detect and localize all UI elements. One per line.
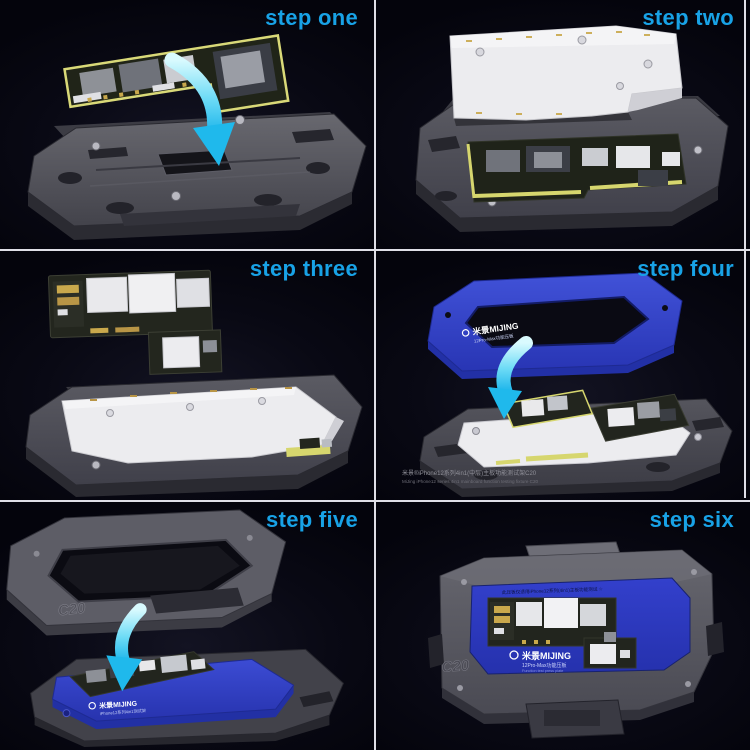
watermark-line-en: MiJing iPhone12 series 4in1 mainboard fu… <box>402 479 539 484</box>
watermark-line-cn: 米景®iPhone12系列4in1(中层)主板功能测试架C20 <box>402 469 537 477</box>
panel-step-six: step six <box>376 502 750 750</box>
panel-step-three: step three <box>0 251 374 500</box>
panel-step-five: step five C20 <box>0 502 374 750</box>
right-clamp <box>706 622 724 656</box>
plate-model-text: 12Pro-Max功能压板 <box>522 662 566 669</box>
blue-fixture-assembly: 米景MIJING iPhone12系列4in1测试架 <box>31 649 344 747</box>
installed-white-plate <box>62 387 344 463</box>
blue-top-plate: 此压板仅适用iPhone12系列(4in1)主板功能测试 ☆ <box>470 578 690 674</box>
step-six-label: step six <box>650 507 734 533</box>
step-three-illustration <box>0 251 374 500</box>
step-two-illustration <box>376 0 750 249</box>
frame-emboss-text: C20 <box>57 600 87 620</box>
plate-logo-text: 米景MIJING <box>521 650 571 661</box>
grid-divider-right <box>744 0 746 498</box>
gray-top-frame: C20 <box>7 510 286 635</box>
panel-step-two: step two <box>376 0 750 249</box>
blue-press-frame: 米景MIJING 12Pro-Max功能压板 <box>428 273 682 379</box>
step-one-illustration <box>0 0 374 249</box>
step-four-label: step four <box>637 256 734 282</box>
step-two-label: step two <box>642 5 734 31</box>
instruction-sheet: step one <box>0 0 750 750</box>
panel-step-four: step four <box>376 251 750 500</box>
step-three-label: step three <box>250 256 358 282</box>
panel-step-one: step one <box>0 0 374 249</box>
step-one-label: step one <box>265 5 358 31</box>
step-five-illustration: C20 米景MIJING <box>0 502 374 750</box>
step-five-label: step five <box>266 507 358 533</box>
step-six-illustration: C20 此压板仅适用iPhone12系列(4in1)主板功能测试 ☆ <box>376 502 750 750</box>
step-grid: step one <box>0 0 750 750</box>
upper-logic-board <box>48 270 221 378</box>
step-four-illustration: 米景MIJING 12Pro-Max功能压板 米景®iPhone12系列4in1… <box>376 251 750 500</box>
plate-model-subtext: Function test press plate <box>522 669 563 673</box>
body-emboss-text: C20 <box>441 657 470 676</box>
